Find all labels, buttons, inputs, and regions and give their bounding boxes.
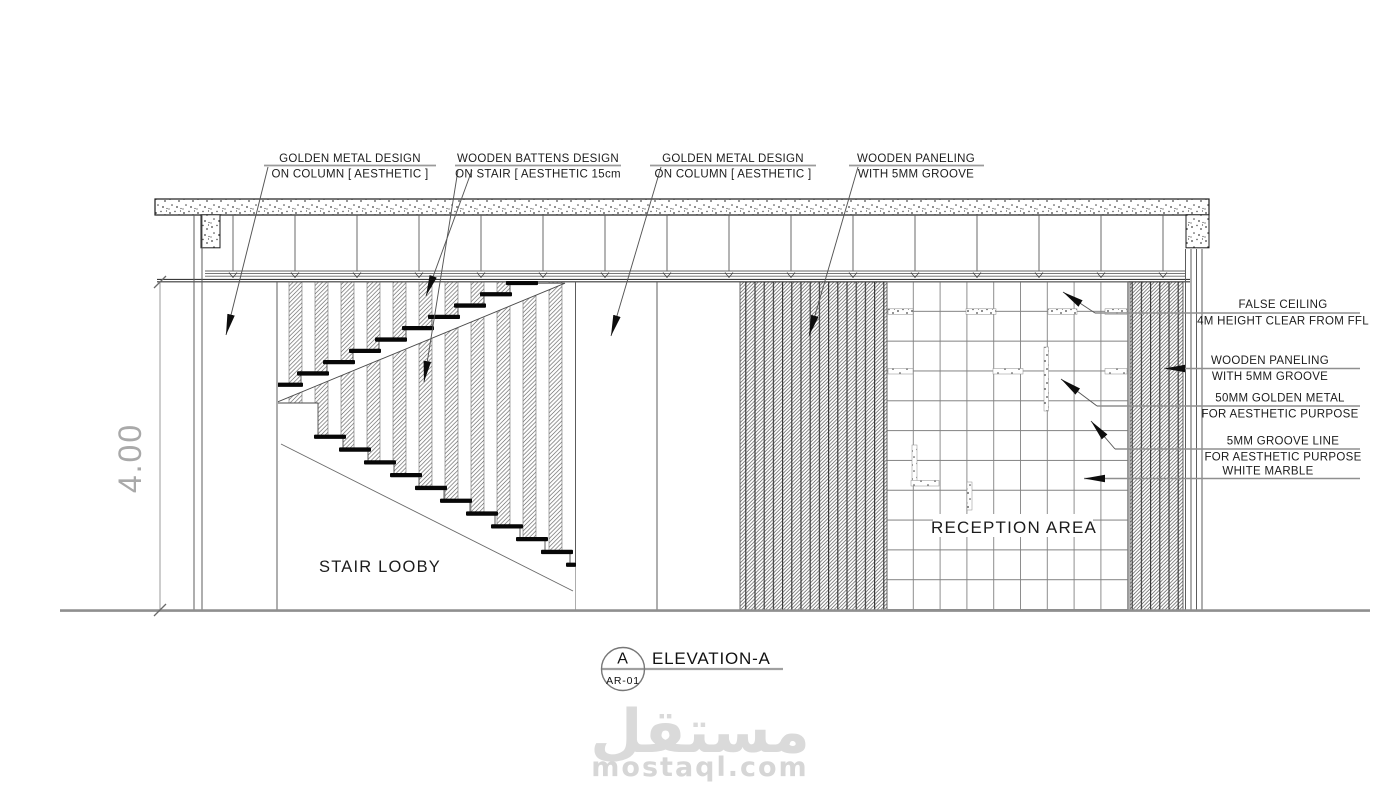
label-golden-metal-1-line2: ON COLUMN [ AESTHETIC ] [271, 169, 428, 181]
label-wooden-paneling-top-line2: WITH 5MM GROOVE [858, 169, 974, 181]
title-name: ELEVATION-A [652, 649, 771, 668]
label-paneling-right-line1: WOODEN PANELING [1211, 355, 1329, 367]
dimension-4m-label: 4.00 [112, 423, 148, 493]
reception-area-label: RECEPTION AREA [931, 518, 1097, 537]
concrete-slab [155, 199, 1209, 248]
label-wooden-battens-line2: ON STAIR [ AESTHETIC 15cm [455, 169, 621, 181]
label-golden-metal-1-line1: GOLDEN METAL DESIGN [279, 153, 421, 165]
label-wooden-battens-line1: WOODEN BATTENS DESIGN [457, 153, 619, 165]
label-wooden-paneling-top-line1: WOODEN PANELING [857, 153, 975, 165]
label-false-ceiling-line1: FALSE CEILING [1239, 299, 1328, 311]
watermark: مستقل mostaql.com [590, 697, 809, 783]
ceiling-hangers [233, 215, 1163, 271]
leader-golden-metal-left [226, 167, 268, 335]
reception-wall-grid [887, 282, 1128, 610]
label-paneling-right-line2: WITH 5MM GROOVE [1212, 371, 1328, 383]
label-golden-metal-2-line2: ON COLUMN [ AESTHETIC ] [654, 169, 811, 181]
false-ceiling-structure [157, 215, 1190, 282]
leader-golden-metal-mid [611, 167, 661, 336]
label-golden-metal-2-line1: GOLDEN METAL DESIGN [662, 153, 804, 165]
watermark-latin: mostaql.com [591, 752, 808, 783]
label-50mm-golden-line1: 50MM GOLDEN METAL [1215, 393, 1345, 405]
leader-battens-1 [426, 170, 472, 296]
title-bubble-letter: A [617, 651, 628, 668]
drawing-title: A AR-01 ELEVATION-A [601, 648, 783, 691]
elevation-drawing-canvas: 4.00 GOLDEN METAL DESIGN ON COLUMN [ AES… [0, 0, 1400, 793]
label-false-ceiling-line2: 4M HEIGHT CLEAR FROM FFL [1197, 316, 1369, 328]
label-groove-line2: FOR AESTHETIC PURPOSE [1204, 452, 1361, 464]
label-groove-line1: 5MM GROOVE LINE [1227, 436, 1340, 448]
stair-lobby-label: STAIR LOOBY [319, 558, 441, 576]
wooden-paneling-right [1130, 282, 1183, 610]
height-dimension: 4.00 [112, 276, 166, 616]
label-50mm-golden-line2: FOR AESTHETIC PURPOSE [1201, 409, 1358, 421]
label-white-marble: WHITE MARBLE [1222, 466, 1313, 478]
wooden-paneling-mid [740, 282, 887, 610]
title-bubble-ref: AR-01 [606, 675, 640, 687]
